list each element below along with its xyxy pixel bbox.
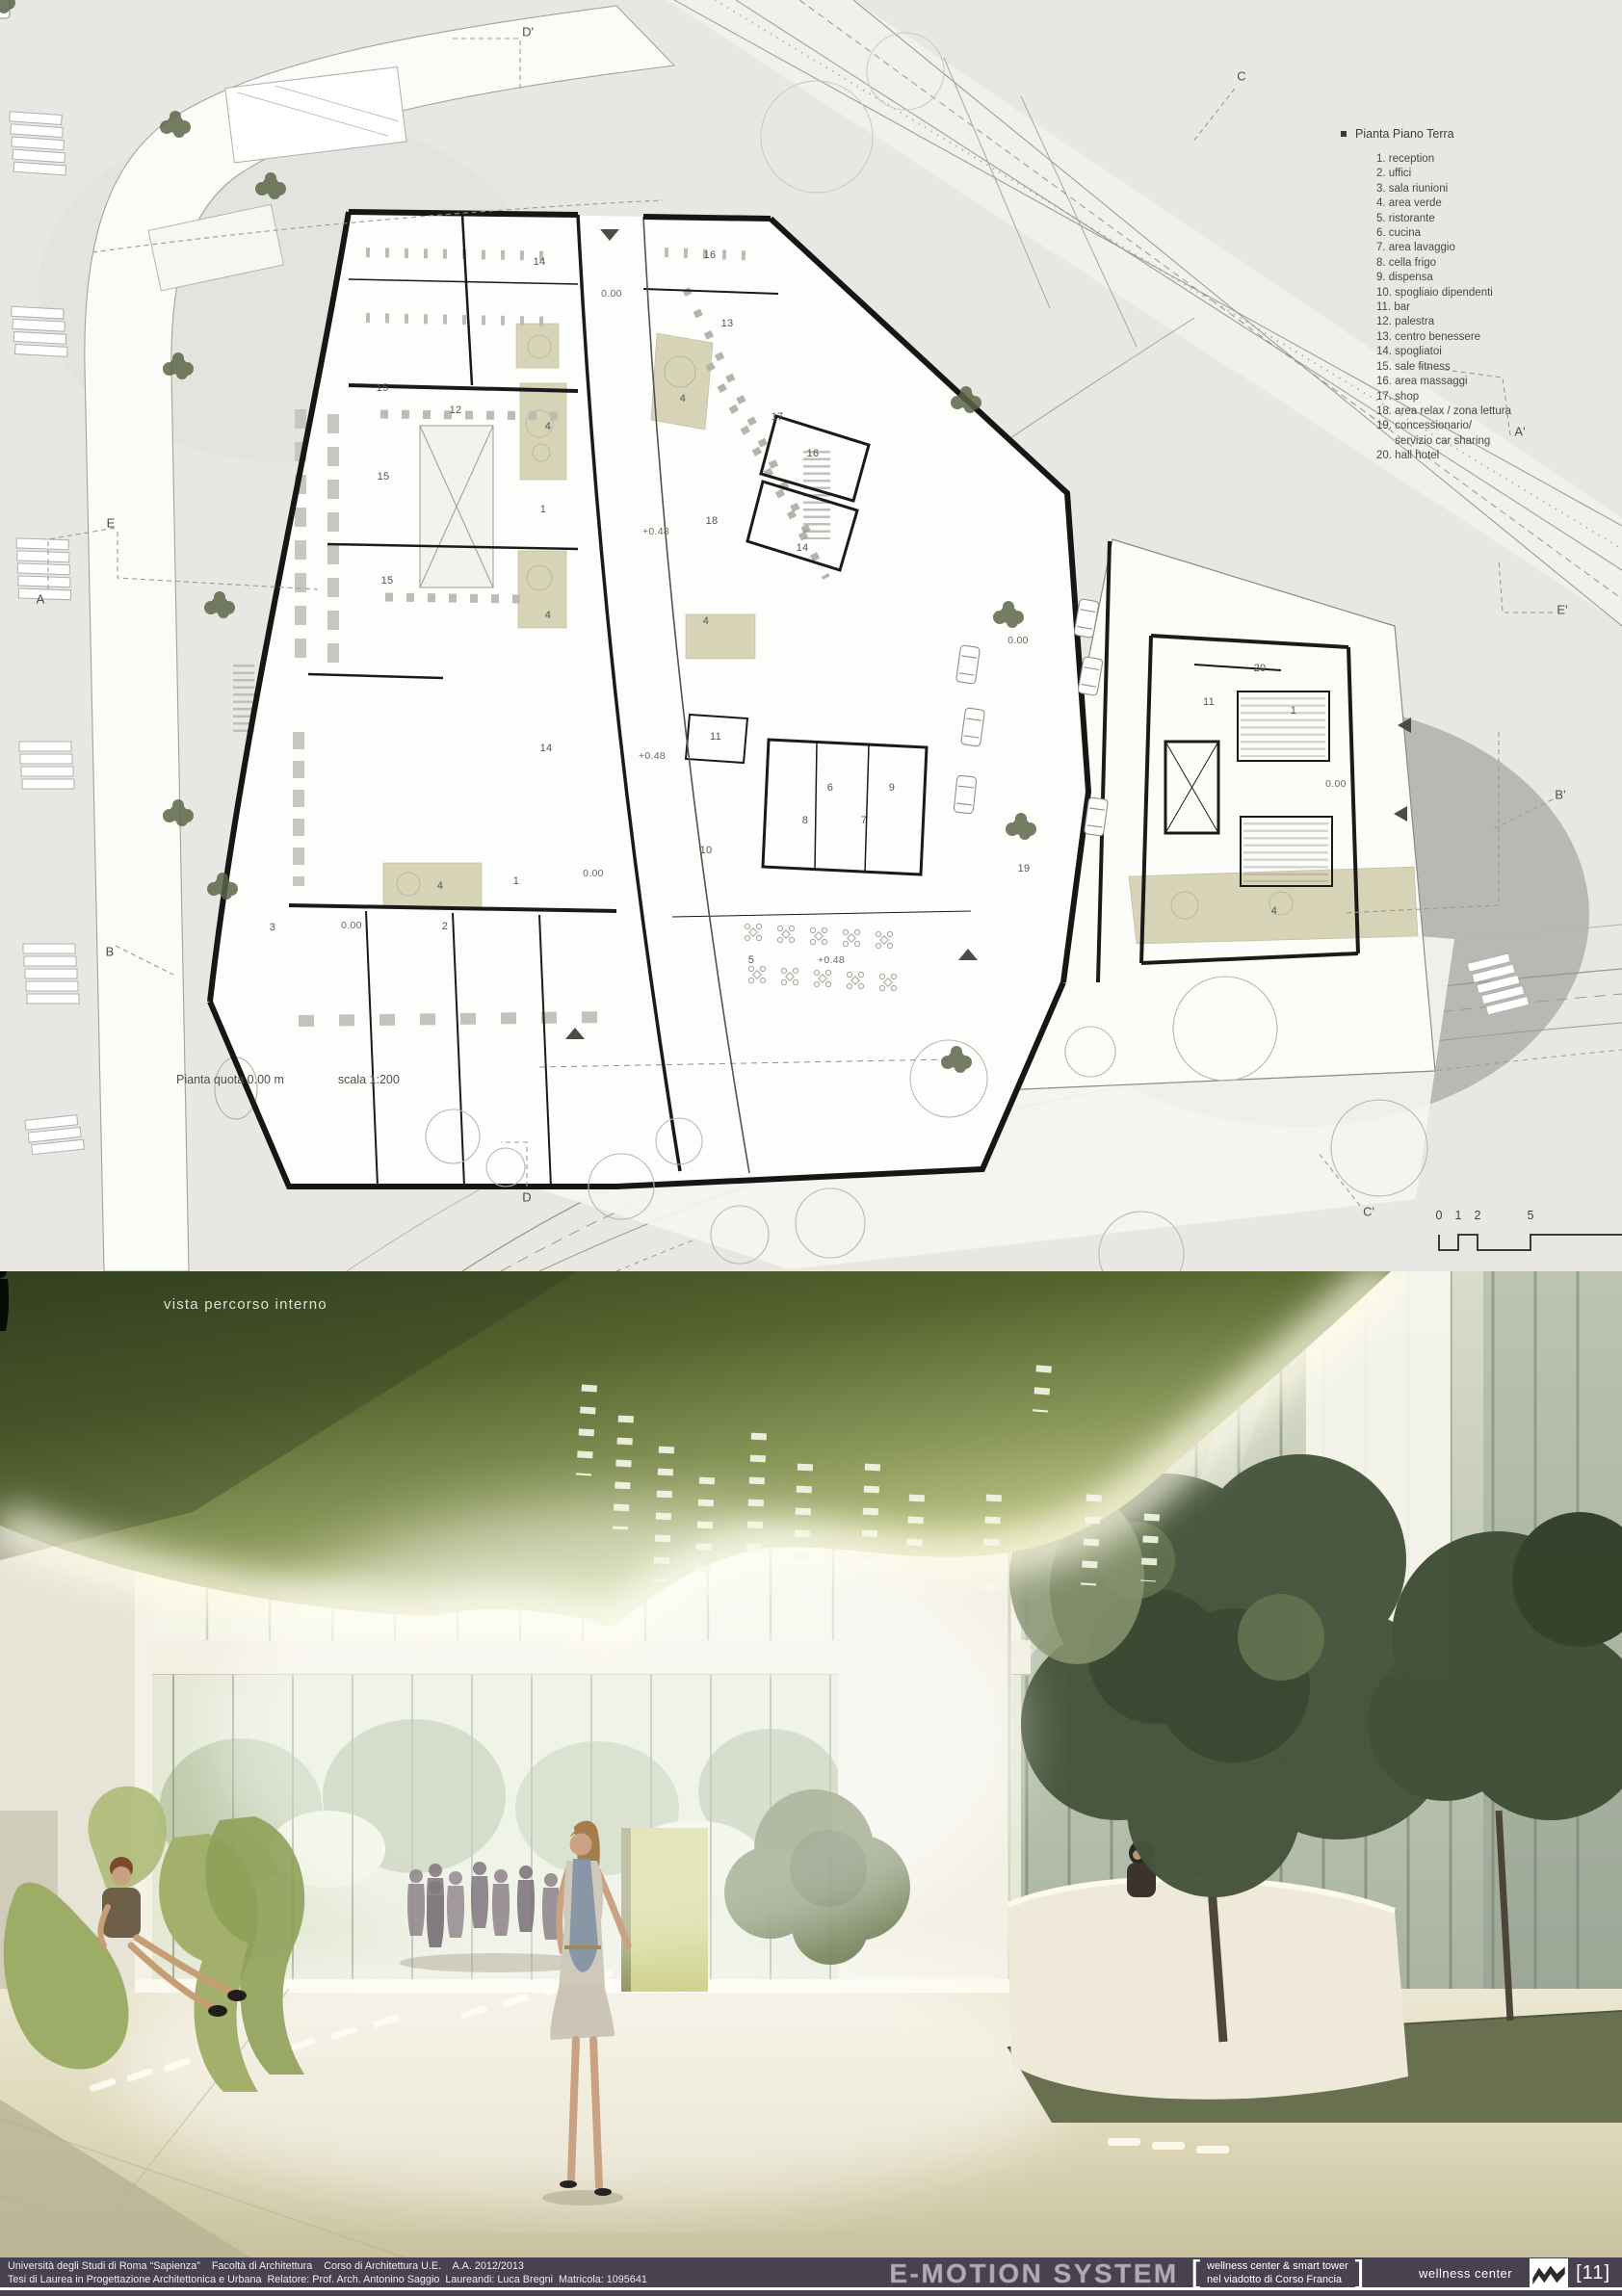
title-bar: Università degli Studi di Roma “Sapienza…: [0, 2257, 1622, 2296]
project-title: E-MOTION SYSTEM: [889, 2259, 1178, 2288]
subtitle-line1: wellness center & smart tower: [1207, 2260, 1348, 2274]
scale-bar-glyph: [1437, 1223, 1622, 1256]
legend-item: 11. bar: [1341, 300, 1582, 315]
interior-render: vista percorso interno: [0, 1271, 1622, 2257]
plan-caption-quota: Pianta quota 0.00 m: [176, 1073, 284, 1086]
sheet-label: wellness center: [1419, 2266, 1512, 2281]
legend-item: 18. area relax / zona lettura: [1341, 404, 1582, 419]
credits: Università degli Studi di Roma “Sapienza…: [0, 2260, 647, 2286]
legend: Pianta Piano Terra 1. reception2. uffici…: [1341, 127, 1582, 464]
scale-bar: 012510m: [1437, 1210, 1622, 1260]
zigzag-logo-icon: [1530, 2258, 1568, 2288]
legend-item: 15. sale fitness: [1341, 360, 1582, 375]
legend-item: 10. spogliaio dipendenti: [1341, 286, 1582, 300]
legend-item: 4. area verde: [1341, 196, 1582, 211]
legend-item: 7. area lavaggio: [1341, 241, 1582, 255]
subtitle-line2: nel viadotto di Corso Francia: [1207, 2274, 1348, 2287]
legend-item: 17. shop: [1341, 390, 1582, 404]
legend-item: 2. uffici: [1341, 167, 1582, 181]
render-image: [0, 1271, 1622, 2257]
legend-item: 5. ristorante: [1341, 212, 1582, 226]
legend-item: 9. dispensa: [1341, 271, 1582, 285]
presentation-board: Pianta Piano Terra 1. reception2. uffici…: [0, 0, 1622, 2296]
bracket-open: [: [1190, 2260, 1203, 2287]
legend-item: 20. hall hotel: [1341, 449, 1582, 463]
scale-label: 0: [1436, 1209, 1443, 1222]
legend-item: 8. cella frigo: [1341, 256, 1582, 271]
plan-caption: Pianta quota 0.00 m scala 1:200: [176, 1073, 400, 1086]
bracket-close: ]: [1352, 2260, 1365, 2287]
scale-label: 5: [1528, 1209, 1534, 1222]
legend-item: 6. cucina: [1341, 226, 1582, 241]
legend-item: 16. area massaggi: [1341, 375, 1582, 389]
floor-plan-panel: Pianta Piano Terra 1. reception2. uffici…: [0, 0, 1622, 1271]
legend-item: 13. centro benessere: [1341, 330, 1582, 345]
scale-label: 1: [1455, 1209, 1462, 1222]
plan-caption-scala: scala 1:200: [338, 1073, 400, 1086]
legend-item: 3. sala riunioni: [1341, 182, 1582, 196]
scale-label: 2: [1475, 1209, 1481, 1222]
credits-line1: Università degli Studi di Roma “Sapienza…: [8, 2260, 647, 2274]
render-caption: vista percorso interno: [164, 1296, 327, 1313]
reception-desk: [1007, 1879, 1408, 2100]
legend-item: servizio car sharing: [1341, 434, 1582, 449]
footer-divider: [0, 2287, 1622, 2290]
legend-items: 1. reception2. uffici3. sala riunioni4. …: [1341, 152, 1582, 464]
legend-item: 14. spogliatoi: [1341, 345, 1582, 359]
legend-item: 12. palestra: [1341, 315, 1582, 329]
legend-item: 1. reception: [1341, 152, 1582, 167]
credits-line2: Tesi di Laurea in Progettazione Architet…: [8, 2274, 647, 2287]
project-subtitle: [ wellness center & smart tower nel viad…: [1190, 2260, 1365, 2287]
page-number: [11]: [1576, 2262, 1610, 2284]
legend-title: Pianta Piano Terra: [1355, 127, 1454, 141]
legend-bullet-icon: [1341, 131, 1347, 137]
legend-item: 19. concessionario/: [1341, 419, 1582, 433]
